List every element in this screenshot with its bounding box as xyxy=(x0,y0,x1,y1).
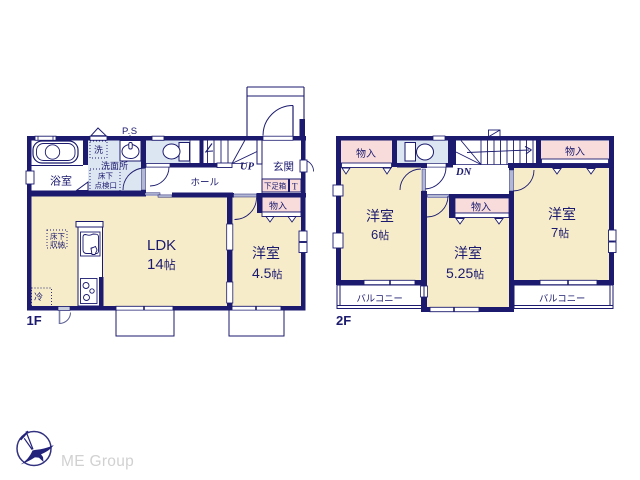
svg-text:6帖: 6帖 xyxy=(371,227,389,242)
svg-text:洋室: 洋室 xyxy=(454,245,482,261)
svg-text:ホール: ホール xyxy=(191,178,220,189)
svg-text:ME Group: ME Group xyxy=(61,453,134,470)
svg-text:7帖: 7帖 xyxy=(551,225,569,240)
svg-text:T: T xyxy=(292,182,298,192)
svg-text:下足箱: 下足箱 xyxy=(264,182,286,191)
svg-text:床下: 床下 xyxy=(98,171,113,181)
svg-text:1F: 1F xyxy=(27,313,42,328)
svg-text:冷: 冷 xyxy=(34,291,43,302)
svg-text:玄関: 玄関 xyxy=(273,160,294,173)
svg-text:LDK: LDK xyxy=(147,237,176,254)
svg-text:バルコニー: バルコニー xyxy=(539,294,585,304)
svg-text:物入: 物入 xyxy=(269,200,287,211)
svg-text:バルコニー: バルコニー xyxy=(357,294,403,304)
svg-text:物入: 物入 xyxy=(471,201,491,214)
svg-text:14帖: 14帖 xyxy=(147,256,176,273)
svg-text:2F: 2F xyxy=(336,313,351,328)
svg-text:洗: 洗 xyxy=(94,144,103,155)
svg-text:洋室: 洋室 xyxy=(252,245,280,261)
svg-text:浴室: 浴室 xyxy=(50,174,72,188)
svg-text:点検口: 点検口 xyxy=(95,180,118,190)
svg-text:UP: UP xyxy=(240,162,255,173)
svg-text:物入: 物入 xyxy=(356,147,376,160)
svg-text:洋室: 洋室 xyxy=(366,208,394,224)
svg-text:洋室: 洋室 xyxy=(548,206,576,222)
svg-text:物入: 物入 xyxy=(565,145,585,158)
svg-text:DN: DN xyxy=(455,167,472,178)
svg-text:収納: 収納 xyxy=(50,239,65,249)
